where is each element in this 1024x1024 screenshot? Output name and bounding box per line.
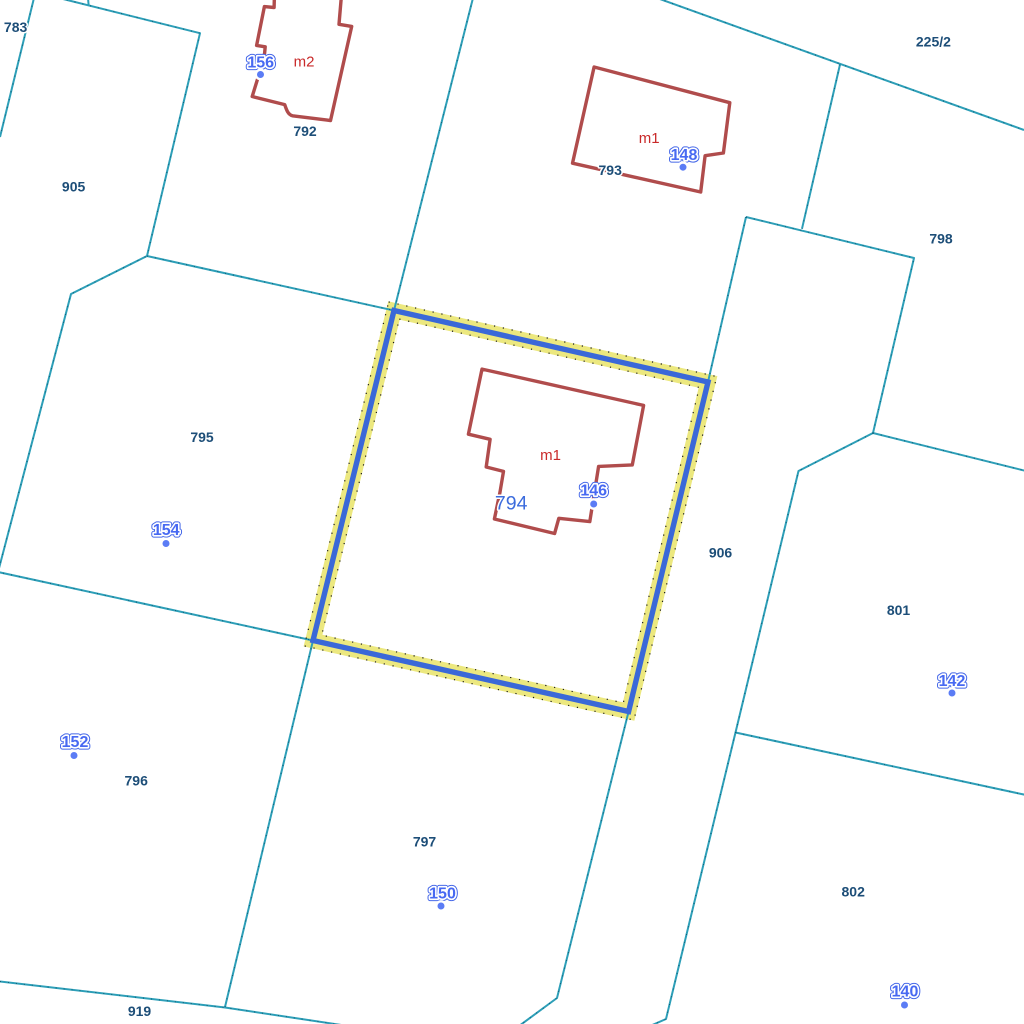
svg-text:m1: m1 [639,130,660,147]
svg-text:m2: m2 [294,54,315,71]
svg-text:146: 146 [580,483,607,500]
svg-text:152: 152 [62,734,89,751]
svg-text:225/2: 225/2 [916,34,951,50]
svg-text:905: 905 [62,179,86,195]
svg-text:794: 794 [495,493,528,515]
svg-text:140: 140 [892,984,919,1001]
svg-text:798: 798 [929,231,953,247]
svg-text:802: 802 [842,884,866,900]
svg-text:m1: m1 [540,447,561,464]
svg-text:795: 795 [190,429,214,445]
svg-text:793: 793 [599,162,623,178]
svg-text:154: 154 [153,522,180,539]
svg-text:792: 792 [293,123,317,139]
svg-text:919: 919 [128,1003,152,1019]
svg-text:801: 801 [887,602,911,618]
svg-text:150: 150 [429,886,456,903]
svg-text:796: 796 [125,773,149,789]
svg-text:797: 797 [413,834,437,850]
svg-text:906: 906 [709,545,733,561]
svg-text:783: 783 [4,19,28,35]
